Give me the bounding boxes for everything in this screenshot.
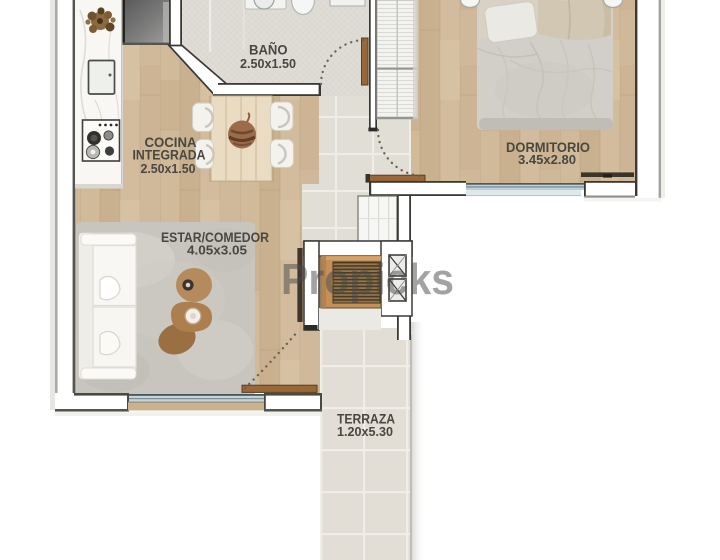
svg-text:1.20x5.30: 1.20x5.30 [337,424,393,439]
svg-text:2.50x1.50: 2.50x1.50 [240,56,296,71]
svg-text:Propicks: Propicks [281,256,454,304]
svg-text:4.05x3.05: 4.05x3.05 [187,243,247,258]
svg-text:3.45x2.80: 3.45x2.80 [518,152,576,167]
svg-text:2.50x1.50: 2.50x1.50 [141,161,196,176]
